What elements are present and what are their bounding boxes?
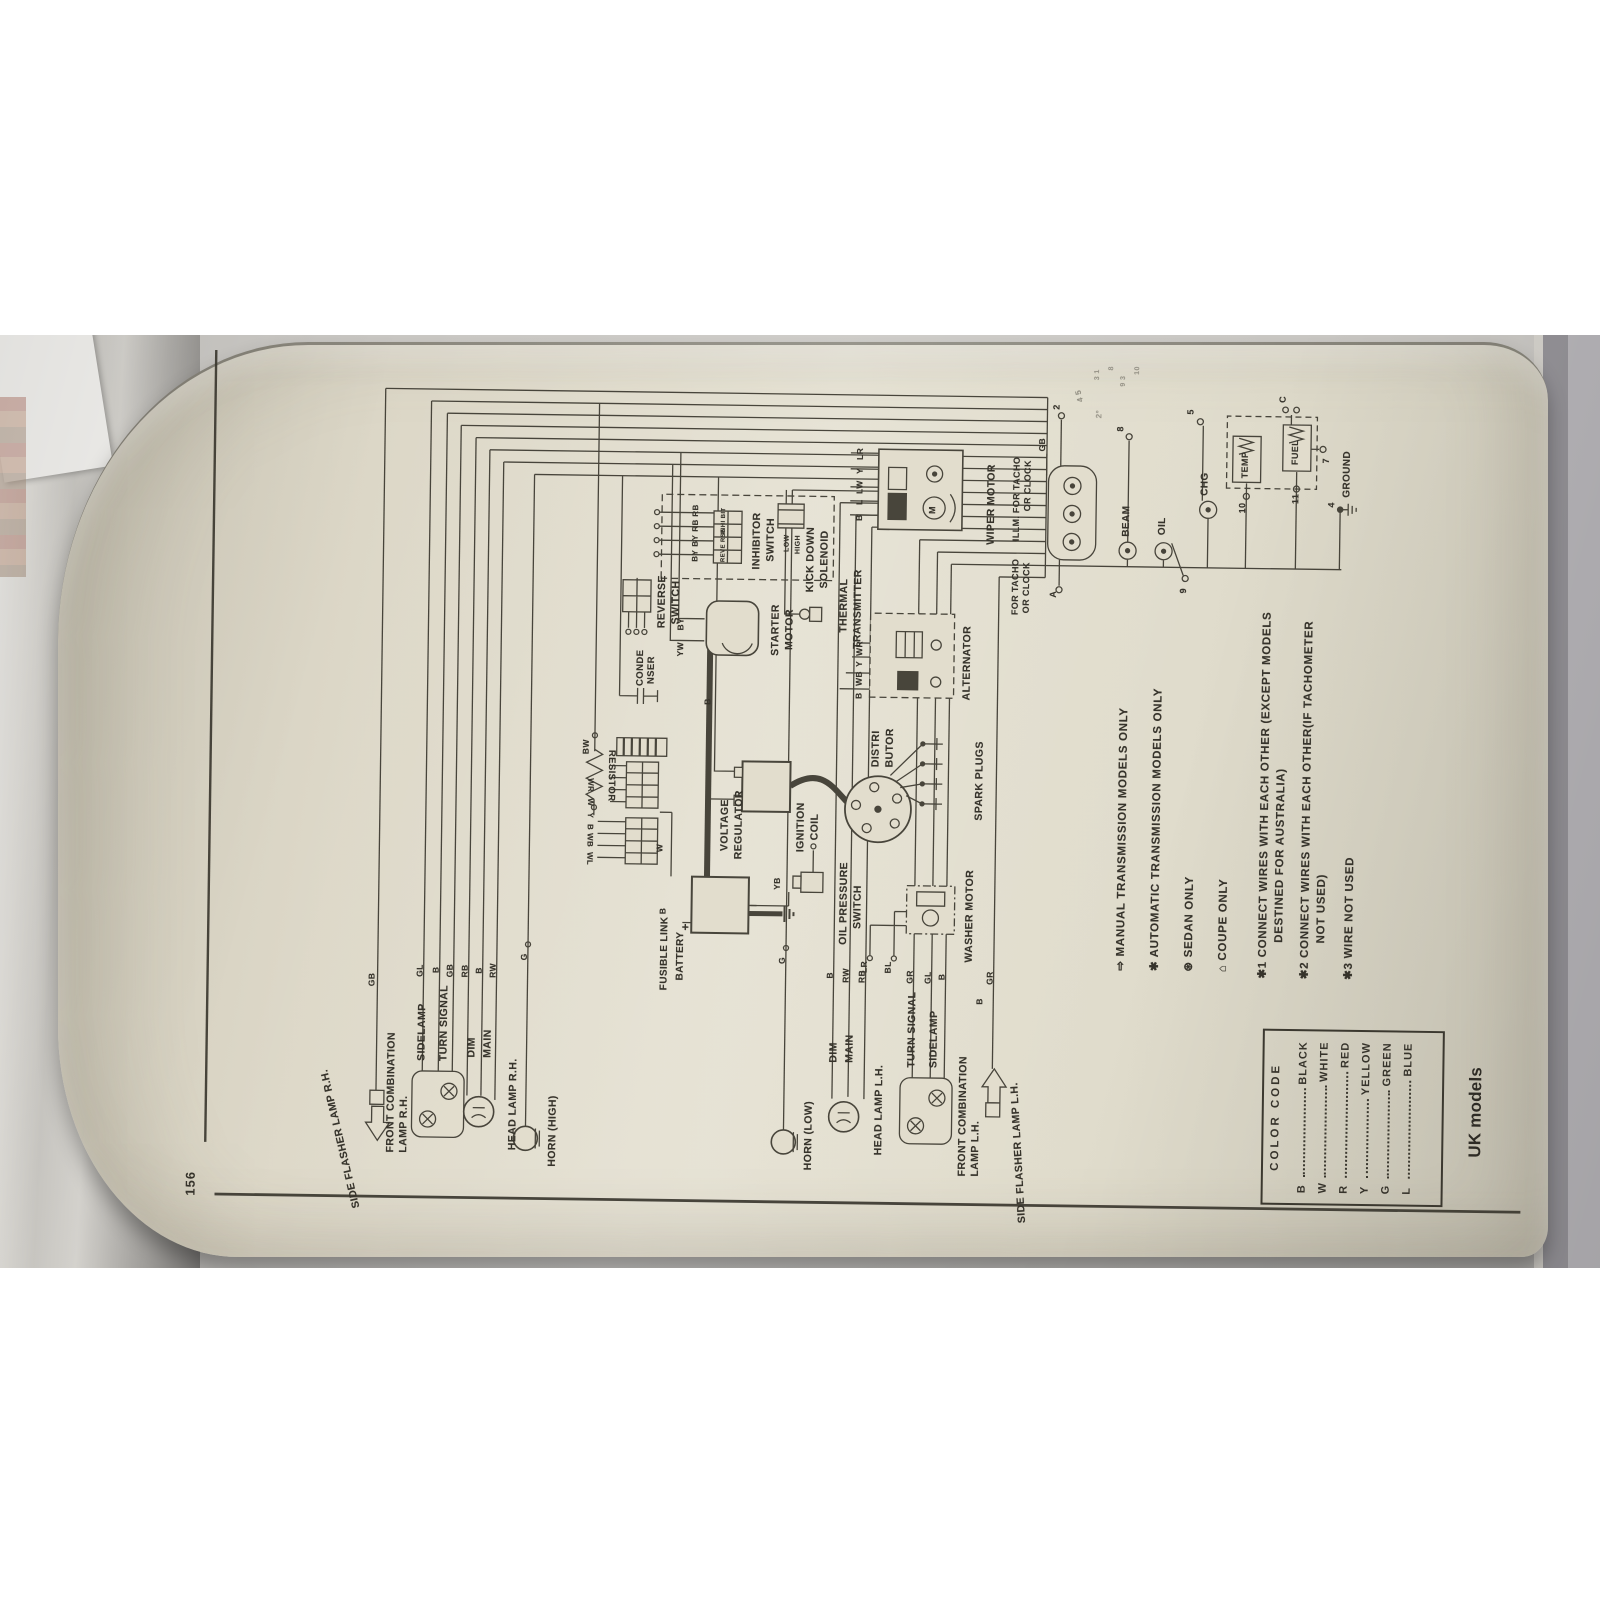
color-code-leader xyxy=(1365,1099,1369,1178)
washer-motor-label: WASHER MOTOR xyxy=(964,870,976,963)
voltage-regulator-label-2: REGULATOR xyxy=(733,790,744,859)
color-code-title: COLOR CODE xyxy=(1269,1041,1283,1193)
distributor-label-2: BUTOR xyxy=(885,728,896,767)
horn-low-label: HORN (LOW) xyxy=(803,1101,814,1170)
condenser-label-1: CONDE xyxy=(636,650,646,686)
faint-mark-2deg: 2° xyxy=(1095,410,1103,419)
kick-down-label-1: KICK DOWN xyxy=(805,527,816,593)
wire-gb-1: GB xyxy=(367,973,376,987)
ground-label: GROUND xyxy=(1342,451,1353,498)
wire-yb: YB xyxy=(773,877,782,890)
color-code-letter: R xyxy=(1338,1178,1350,1194)
turn-signal-lh-label: TURN SIGNAL xyxy=(906,992,918,1068)
reverse-switch-label-2: SWITCH xyxy=(671,581,682,625)
color-code-letter: B xyxy=(1296,1177,1308,1193)
wire-gl-1: GL xyxy=(416,964,425,977)
inhibitor-wire-by-1: BY xyxy=(691,550,699,562)
wire-g-1: G xyxy=(520,953,529,960)
wire-b-7: B xyxy=(586,824,594,830)
wire-l: L xyxy=(855,499,864,505)
battery-label: BATTERY xyxy=(676,932,687,981)
color-code-leader xyxy=(1386,1091,1390,1179)
book-fore-edge-stripes xyxy=(0,397,26,577)
wire-lr-1: LR xyxy=(860,961,869,973)
wire-bw: BW xyxy=(582,739,591,754)
footer-caption: UK models xyxy=(1465,1067,1486,1158)
color-code-row-W: WWHITE xyxy=(1308,1041,1331,1193)
color-code-rows: BBLACKWWHITERREDYYELLOWGGREENLBLUE xyxy=(1287,1041,1415,1195)
oil-pressure-label-1: OIL PRESSURE xyxy=(838,862,850,945)
note-line-4: ⌂ COUPE ONLY xyxy=(1218,878,1231,972)
photo-of-manual-page: 156 xyxy=(0,0,1600,1600)
horn-high-label: HORN (HIGH) xyxy=(547,1095,558,1167)
wire-rw-1: RW xyxy=(489,963,498,978)
wire-b-10: B xyxy=(855,514,864,521)
chg-label: CHG xyxy=(1200,472,1210,496)
color-code-name: WHITE xyxy=(1318,1041,1331,1082)
color-code-letter: G xyxy=(1380,1178,1392,1194)
resistor-label: RESISTOR xyxy=(606,750,616,802)
wire-b-5: B xyxy=(975,998,984,1005)
wiring-diagram-sheet: 156 xyxy=(184,346,1536,1265)
inhibitor-switch-label-1: INHIBITOR xyxy=(751,512,762,569)
fuel-label: FUEL xyxy=(1291,440,1300,465)
battery-plus-label: + xyxy=(679,923,691,931)
thermal-label-2: TRANSMITTER xyxy=(852,569,864,649)
wire-wr-2: WR xyxy=(855,641,864,656)
terminal-9: 9 xyxy=(1179,588,1188,594)
terminal-8: 8 xyxy=(1116,426,1125,432)
wiper-m-label: M xyxy=(928,506,937,514)
wire-yw: YW xyxy=(676,642,685,657)
color-code-row-G: GGREEN xyxy=(1371,1042,1394,1194)
ignition-coil-label-2: COIL xyxy=(810,814,821,841)
turn-signal-rh-label: TURN SIGNAL xyxy=(438,985,450,1061)
inhibitor-wire-by-2: BY xyxy=(692,535,700,547)
spark-plugs-label: SPARK PLUGS xyxy=(974,741,986,821)
wire-bl: BL xyxy=(884,961,893,973)
color-code-row-R: RRED xyxy=(1329,1042,1352,1194)
front-combination-rh-label-1: FRONT COMBINATION xyxy=(385,1032,397,1152)
voltage-regulator-label-1: VOLTAGE xyxy=(719,799,730,851)
terminal-11: 11 xyxy=(1291,494,1300,504)
wire-b-4: B xyxy=(938,974,947,981)
terminal-2: 2 xyxy=(1053,404,1062,410)
color-code-name: GREEN xyxy=(1381,1042,1394,1086)
faint-mark-31: 3 1 xyxy=(1094,369,1101,380)
wire-wr-1: WR xyxy=(586,778,594,792)
color-code-leader xyxy=(1344,1072,1348,1178)
main-rh-label: MAIN xyxy=(482,1029,493,1058)
wire-wb-2: WB xyxy=(855,671,864,686)
color-code-leader xyxy=(1302,1089,1306,1178)
kickdown-low-label: LOW xyxy=(784,534,791,552)
color-code-leader xyxy=(1323,1086,1327,1178)
color-code-row-Y: YYELLOW xyxy=(1350,1042,1373,1194)
note-line-3: ⊛ SEDAN ONLY xyxy=(1184,876,1197,972)
distributor-label-1: DISTRI xyxy=(871,730,882,767)
front-combination-lh-label-2: LAMP L.H. xyxy=(970,1121,981,1177)
faint-mark-10: 10 xyxy=(1134,366,1141,375)
reverse-switch-label-1: REVERSE xyxy=(656,575,667,628)
wire-w-1: W xyxy=(655,844,664,853)
color-code-name: BLUE xyxy=(1402,1043,1414,1077)
wire-gl-2: GL xyxy=(924,971,933,984)
inhibitor-wire-rb-1: RB xyxy=(692,519,700,531)
note-line-9: ✱3 WIRE NOT USED xyxy=(1344,857,1357,980)
wire-b-3: B xyxy=(826,972,835,979)
for-tacho-2b: OR CLOCK xyxy=(1023,460,1033,511)
faint-mark-8: 8 xyxy=(1108,366,1115,370)
sidelamp-rh-label: SIDELAMP xyxy=(416,1003,427,1061)
wire-g-2: G xyxy=(778,957,787,964)
dim-lh-label: DIM xyxy=(828,1042,839,1063)
wire-gr-1: GR xyxy=(906,970,915,984)
wire-b-2: B xyxy=(475,967,484,974)
for-tacho-1b: OR CLOCK xyxy=(1022,562,1032,613)
illm-label: ILLM. xyxy=(1012,516,1021,542)
for-tacho-1a: FOR TACHO xyxy=(1011,559,1021,616)
color-code-name: BLACK xyxy=(1297,1041,1310,1085)
wire-b-1: B xyxy=(432,966,441,973)
wire-lw: LW xyxy=(855,480,864,494)
wire-y-2: Y xyxy=(855,661,864,667)
terminal-4: 4 xyxy=(1327,502,1336,508)
terminal-gb: GB xyxy=(1038,438,1047,452)
head-lamp-rh-label: HEAD LAMP R.H. xyxy=(507,1058,519,1150)
connector-inhibit-label: INHI BIT xyxy=(721,507,727,534)
wire-lr-2: LR xyxy=(856,448,865,460)
color-code-letter: W xyxy=(1317,1177,1329,1193)
color-code-name: YELLOW xyxy=(1360,1042,1373,1095)
temp-label: TEMP xyxy=(1241,452,1250,479)
terminal-5: 5 xyxy=(1186,409,1195,415)
color-code-row-L: LBLUE xyxy=(1392,1042,1415,1194)
wire-rb-1: RB xyxy=(461,964,470,977)
note-line-8: NOT USED) xyxy=(1316,874,1328,944)
condenser-label-2: NSER xyxy=(647,656,657,684)
wire-w-2: W xyxy=(586,798,594,806)
color-code-letter: L xyxy=(1401,1179,1413,1195)
wire-wl: WL xyxy=(585,852,593,865)
starter-motor-label-2: MOTOR xyxy=(784,609,795,650)
terminal-a: A xyxy=(1049,591,1058,598)
starter-motor-label-1: STARTER xyxy=(770,604,781,656)
main-lh-label: MAIN xyxy=(844,1034,855,1063)
wire-b-9: B xyxy=(854,692,863,699)
wire-y-1: Y xyxy=(586,812,594,818)
color-code-name: RED xyxy=(1339,1042,1351,1068)
terminal-c: C xyxy=(1279,396,1288,403)
wire-y-3: Y xyxy=(856,468,865,474)
sidelamp-lh-label: SIDELAMP xyxy=(928,1011,939,1069)
wire-wb-1: WB xyxy=(585,833,593,847)
wire-gr-2: GR xyxy=(986,971,995,985)
kickdown-high-label: HIGH xyxy=(794,535,801,554)
dim-rh-label: DIM xyxy=(466,1037,477,1058)
front-combination-lh-label-1: FRONT COMBINATION xyxy=(957,1056,969,1176)
beam-label: BEAM xyxy=(1122,506,1132,537)
color-code-leader xyxy=(1407,1081,1411,1179)
oil-label: OIL xyxy=(1158,517,1168,535)
oil-pressure-label-2: SWITCH xyxy=(852,885,863,929)
ignition-coil-label-1: IGNITION xyxy=(795,802,806,852)
faint-mark-93: 9 3 xyxy=(1120,376,1127,387)
head-lamp-lh-label: HEAD LAMP L.H. xyxy=(873,1065,885,1156)
terminal-10: 10 xyxy=(1238,502,1247,513)
wire-rw-2: RW xyxy=(842,968,851,983)
thermal-label-1: THERMAL xyxy=(838,579,849,633)
wire-gb-2: GB xyxy=(446,964,455,978)
terminal-7: 7 xyxy=(1322,458,1331,464)
for-tacho-2a: FOR TACHO xyxy=(1012,457,1022,514)
kick-down-label-2: SOLENOID xyxy=(819,530,830,588)
front-combination-rh-label-2: LAMP R.H. xyxy=(398,1096,409,1153)
wire-b-8: B xyxy=(703,698,712,705)
color-code-letter: Y xyxy=(1359,1178,1371,1194)
note-line-6: DESTINED FOR AUSTRALIA) xyxy=(1274,768,1288,943)
color-code-row-B: BBLACK xyxy=(1287,1041,1310,1193)
wire-b-6: B xyxy=(658,908,667,915)
fusible-link-label: FUSIBLE LINK xyxy=(659,917,670,991)
wiper-motor-label: WIPER MOTOR xyxy=(986,464,998,545)
inhibitor-switch-label-2: SWITCH xyxy=(765,518,776,562)
inhibitor-wire-rb-2: RB xyxy=(692,504,700,516)
alternator-label: ALTERNATOR xyxy=(961,626,973,701)
color-code-box: COLOR CODE BBLACKWWHITERREDYYELLOWGGREEN… xyxy=(1260,1029,1444,1208)
